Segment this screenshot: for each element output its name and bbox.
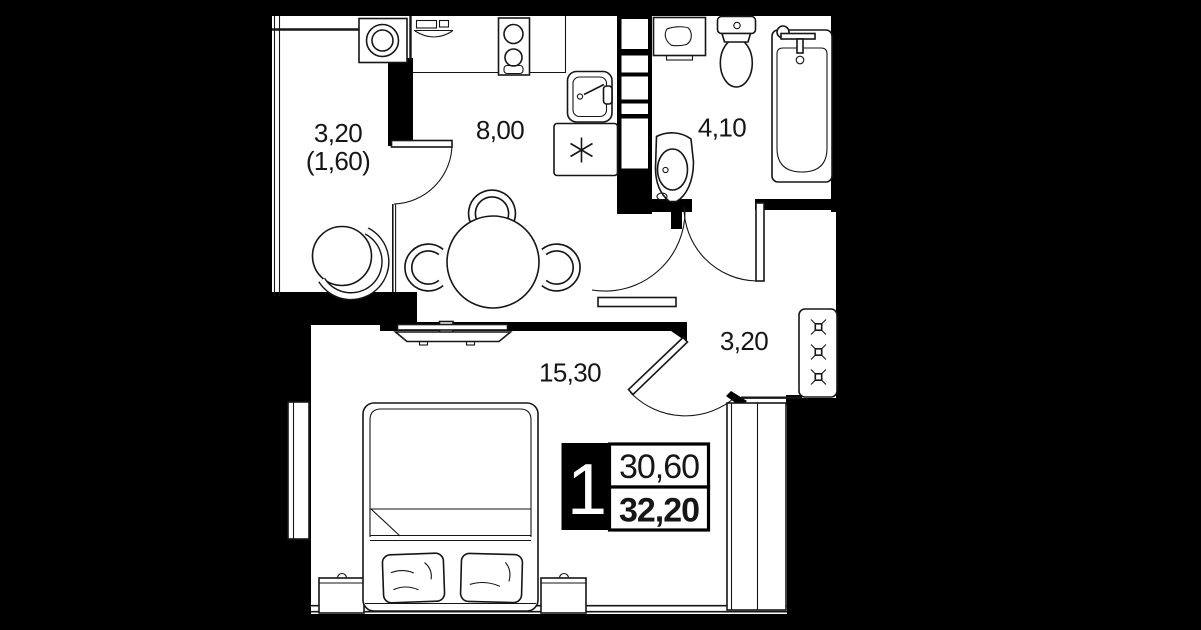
area-badge: 1 30,60 32,20 <box>562 443 709 530</box>
wall-bathroom-stub <box>671 212 682 229</box>
bathtub-icon <box>772 26 832 182</box>
kitchen-hall-door-leaf <box>598 298 676 307</box>
wardrobe <box>727 403 786 610</box>
vanity-icon <box>654 18 706 61</box>
balcony-area-reduced-label: (1,60) <box>306 146 370 176</box>
area-top-value: 30,60 <box>619 448 699 486</box>
area-bottom-value: 32,20 <box>619 492 699 530</box>
wall-hallway-top <box>755 199 836 210</box>
tv-icon <box>396 322 511 346</box>
floor-plan: 3,20 (1,60) 8,00 4,10 3,20 15,30 1 30,60… <box>0 0 1201 630</box>
fridge-icon <box>554 124 618 176</box>
wall-balcony-kitchen <box>388 58 413 146</box>
pillow-icon <box>382 553 445 603</box>
coat-rack-icon <box>799 309 837 397</box>
bathroom-area-label: 4,10 <box>698 113 746 143</box>
toilet-icon <box>718 17 756 88</box>
balcony-door-leaf <box>392 141 453 148</box>
room-count: 1 <box>567 450 605 530</box>
balcony-area-label: 3,20 <box>314 118 362 148</box>
shaft-panels <box>622 19 649 169</box>
floor-plan-canvas: 3,20 (1,60) 8,00 4,10 3,20 15,30 1 30,60… <box>0 0 1201 630</box>
nightstand <box>319 574 364 614</box>
cooktop-icon <box>499 18 530 75</box>
kitchen-area-label: 8,00 <box>476 115 524 145</box>
washing-machine-icon <box>359 19 407 63</box>
dining-table-icon <box>447 216 539 308</box>
nightstand <box>541 574 586 614</box>
hallway-area-label: 3,20 <box>720 326 768 356</box>
toilet-seat <box>722 34 751 43</box>
bed-icon <box>363 403 538 611</box>
pillow-icon <box>460 553 522 603</box>
kitchen-sink-icon <box>568 72 613 123</box>
living-window-left <box>288 402 309 539</box>
bathroom-door-leaf <box>756 203 764 281</box>
living-area-label: 15,30 <box>539 358 601 388</box>
